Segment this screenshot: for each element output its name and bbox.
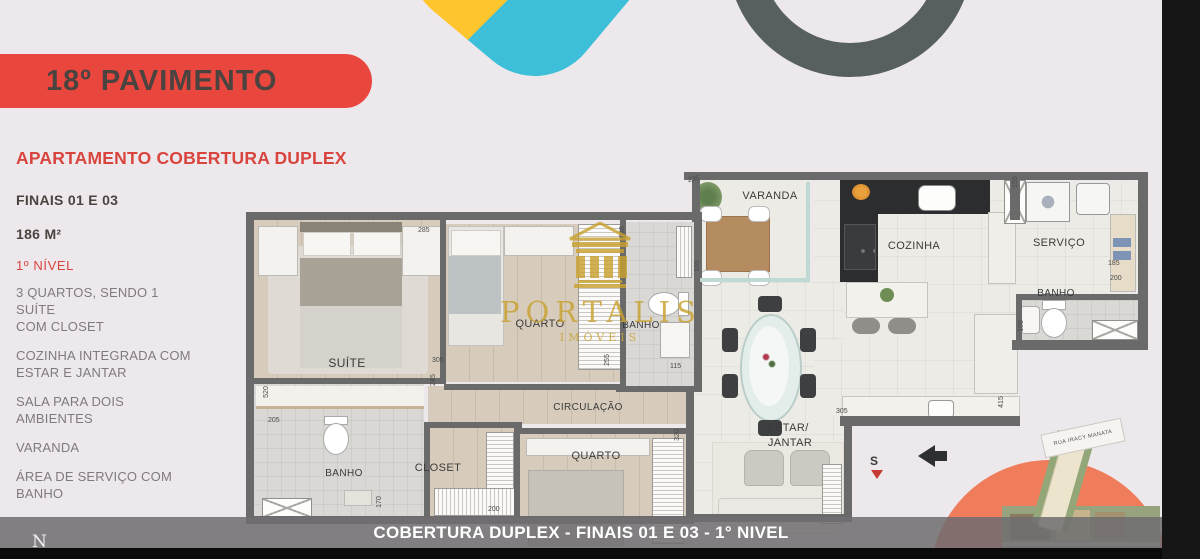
feature-item: ÁREA DE SERVIÇO COM BANHO [16, 468, 196, 502]
wall [684, 172, 1146, 180]
apartment-title: APARTAMENTO COBERTURA DUPLEX [16, 148, 347, 169]
compass-s-arrow [871, 470, 883, 479]
wall [1012, 340, 1148, 350]
wall [840, 416, 1020, 426]
wall [424, 422, 522, 428]
suite-bed-headboard [300, 222, 402, 232]
dim-label: 320 [674, 429, 682, 441]
plant [880, 288, 894, 302]
right-black-strip [1162, 0, 1200, 559]
dim-label: 170 [376, 496, 384, 508]
brochure-page: 18º PAVIMENTO APARTAMENTO COBERTURA DUPL… [0, 0, 1200, 559]
caption-bar: COBERTURA DUPLEX - FINAIS 01 E 03 - 1° N… [0, 517, 1162, 548]
suite-bed-duvet [300, 258, 402, 306]
room-label-cozinha: COZINHA [888, 240, 940, 252]
wall [246, 212, 702, 220]
compass-s: S [870, 454, 878, 468]
dim-label: 200 [1110, 275, 1122, 283]
laundry-tank [1076, 183, 1110, 215]
room-label-suite: SUÍTE [328, 356, 365, 370]
kitchen-sink [918, 185, 956, 211]
varanda-table [706, 216, 770, 272]
pillow [303, 232, 351, 256]
wall [246, 212, 254, 524]
dim-label: 205 [268, 417, 280, 425]
fruit-bowl [852, 184, 870, 200]
level-label: 1º NÍVEL [16, 258, 74, 273]
bath-bench [344, 490, 372, 506]
bottom-black-strip [0, 548, 1200, 559]
room-label-banho: BANHO [325, 468, 363, 479]
room-label-jantar: JANTAR [768, 437, 812, 449]
stove [844, 224, 876, 270]
yellow-blue-pill-shape [382, 0, 678, 103]
stool [888, 318, 916, 334]
room-label-varanda: VARANDA [742, 190, 797, 202]
towel [1113, 238, 1131, 247]
wall [844, 422, 852, 522]
closet-wardrobe [486, 432, 514, 494]
room-label-servico: SERVIÇO [1033, 237, 1085, 249]
dining-chair [800, 374, 816, 398]
wall [1138, 172, 1148, 350]
feature-list: 3 QUARTOS, SENDO 1 SUÍTE COM CLOSET COZI… [16, 284, 196, 514]
room-label-quarto: QUARTO [571, 450, 620, 462]
varanda-glass-rail [806, 182, 810, 280]
stool [852, 318, 880, 334]
shower-box [1092, 320, 1138, 340]
vanity-counter [256, 386, 424, 409]
dark-ring-shape [727, 0, 973, 77]
finais-label: FINAIS 01 E 03 [16, 192, 118, 208]
feature-item: COZINHA INTEGRADA COM ESTAR E JANTAR [16, 347, 196, 381]
washing-machine [1026, 182, 1070, 222]
pillow [451, 230, 501, 256]
floor-banner: 18º PAVIMENTO [0, 54, 372, 108]
dining-chair [800, 328, 816, 352]
varanda-glass-door [700, 278, 810, 282]
dim-label: 415 [998, 396, 1006, 408]
watermark-brand: PORTALIS [500, 295, 700, 329]
dim-label: 255 [604, 354, 612, 366]
armchair [744, 450, 784, 486]
dim-label: 520 [263, 386, 271, 398]
dim-label: 115 [670, 363, 681, 371]
nightstand [258, 226, 298, 276]
wall [444, 384, 620, 390]
dim-label: 305 [836, 408, 848, 416]
dining-chair [758, 296, 782, 312]
blanket [449, 256, 501, 314]
dim-label: 285 [418, 227, 430, 235]
wall [1016, 294, 1144, 300]
feature-item: 3 QUARTOS, SENDO 1 SUÍTE COM CLOSET [16, 284, 196, 335]
entry-arrow-icon [918, 445, 935, 467]
watermark-logo: PORTALIS IMÓVEIS [500, 222, 700, 344]
wall [686, 386, 694, 522]
area-label: 186 M² [16, 226, 61, 242]
shower-box [262, 498, 312, 518]
dim-label: 185 [1108, 260, 1120, 268]
toilet [323, 423, 349, 455]
entry-arrow-tail [934, 451, 947, 461]
closet-wardrobe [434, 488, 518, 516]
pillow [353, 232, 401, 256]
feature-item: VARANDA [16, 439, 196, 456]
dim-label: 155 [1012, 176, 1020, 188]
caption-text: COBERTURA DUPLEX - FINAIS 01 E 03 - 1° N… [373, 523, 788, 543]
wall [514, 428, 520, 524]
dim-label: 245 [430, 374, 438, 386]
towel [1113, 251, 1131, 260]
temple-icon [568, 222, 632, 288]
chair [700, 206, 722, 222]
room-label-circulacao: CIRCULAÇÃO [553, 402, 623, 413]
dim-label: 200 [488, 506, 500, 514]
dim-label: 305 [432, 357, 444, 365]
dim-label: 105 [1018, 320, 1026, 332]
watermark-sub: IMÓVEIS [500, 331, 700, 344]
toilet [1041, 308, 1067, 338]
fridge-cabinet [974, 314, 1018, 394]
dining-chair [722, 374, 738, 398]
room-label-closet: CLOSET [415, 462, 461, 474]
dining-chair [722, 328, 738, 352]
flower-centerpiece [762, 352, 776, 372]
wall [250, 378, 440, 384]
chair [748, 206, 770, 222]
feature-item: SALA PARA DOIS AMBIENTES [16, 393, 196, 427]
room-label-estar: ESTAR/ [767, 422, 808, 434]
wall [514, 428, 692, 434]
room-label-banho: BANHO [1037, 288, 1075, 299]
